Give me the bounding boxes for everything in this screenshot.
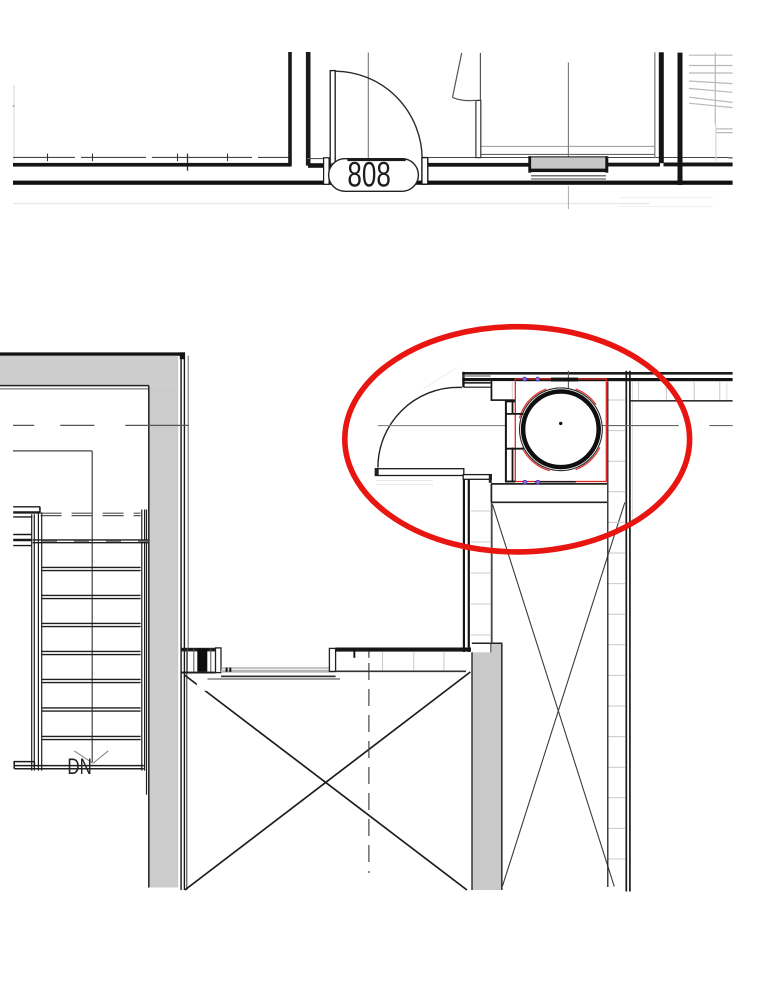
svg-text:808: 808 xyxy=(347,155,391,194)
svg-text:DN: DN xyxy=(67,754,91,779)
